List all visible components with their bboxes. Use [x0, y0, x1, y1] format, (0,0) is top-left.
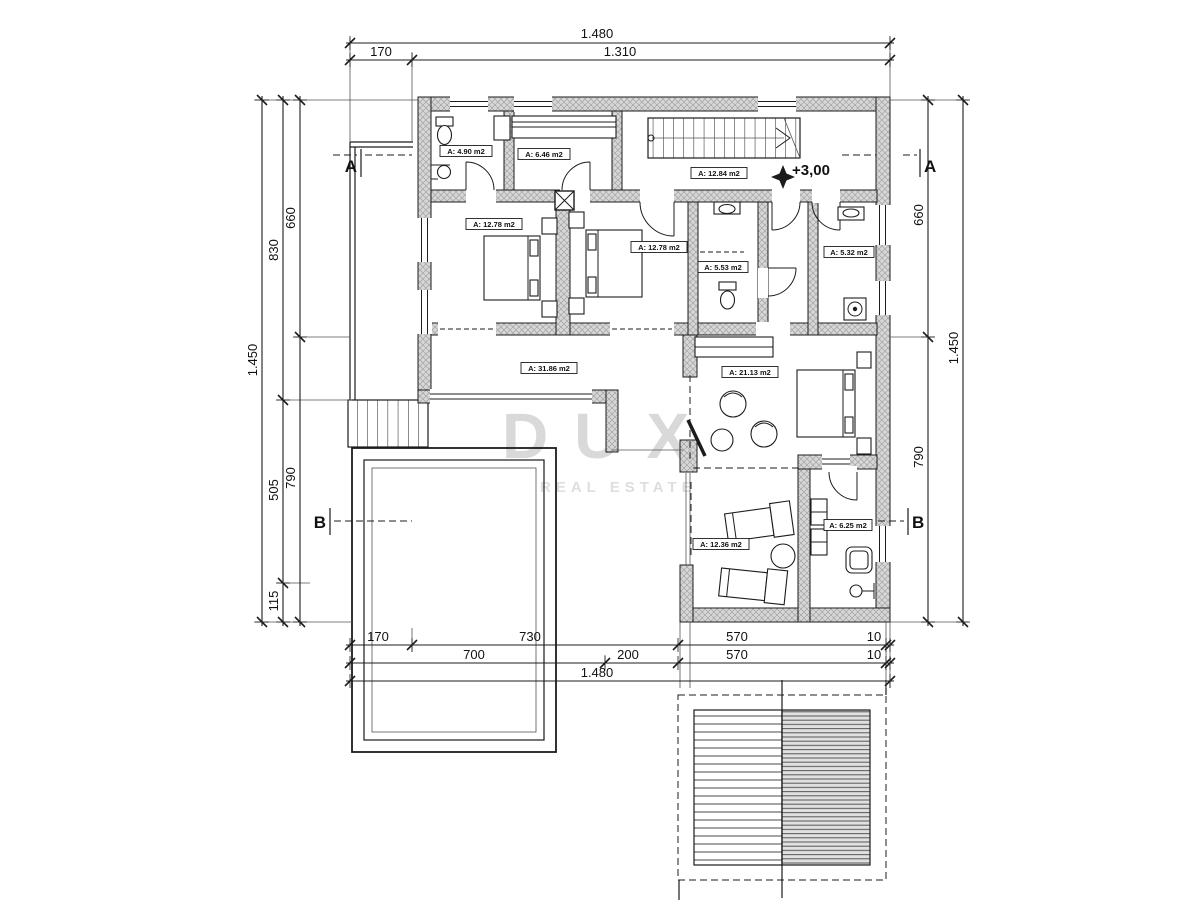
- room-label: A: 6.46 m2: [518, 149, 570, 160]
- room-label: A: 12.78 m2: [631, 242, 687, 253]
- room-label: A: 21.13 m2: [722, 367, 778, 378]
- dim-right-660: 660: [911, 204, 926, 226]
- floor-plan-drawing: DUX REAL ESTATE: [0, 0, 1200, 900]
- sink-icon-e: [838, 207, 864, 220]
- dim-bot-10b: 10: [867, 647, 881, 662]
- pergola-slats-left: [694, 710, 782, 865]
- section-b-right: B: [912, 513, 924, 532]
- sink-icon-mid: [714, 202, 740, 214]
- dim-top-total: 1.480: [581, 26, 614, 41]
- wardrobe-bedroom3: [695, 337, 773, 357]
- dim-left-505: 505: [266, 479, 281, 501]
- side-table-icon: [711, 429, 733, 451]
- pergola: [678, 680, 886, 900]
- pedestal-sink-icon: [850, 583, 874, 599]
- dim-left-115: 115: [266, 591, 281, 612]
- section-b-left: B: [314, 513, 326, 532]
- dim-bot-570a: 570: [726, 629, 748, 644]
- armchair-icon-2: [751, 421, 777, 447]
- dim-left-660: 660: [283, 207, 298, 229]
- wardrobe-closet: [494, 116, 616, 140]
- elevation-value: +3,00: [792, 162, 830, 179]
- bed-icon-bedroom3: [797, 352, 871, 454]
- svg-text:A: 4.90 m2: A: 4.90 m2: [447, 147, 485, 156]
- interior-stairs-icon: [648, 118, 800, 158]
- room-label: A: 5.32 m2: [824, 247, 874, 258]
- toilet-icon-mid: [719, 282, 736, 309]
- dimensions-bottom: 170 730 570 10 700 200 570 10 1.480: [345, 622, 895, 688]
- svg-text:A: 5.32 m2: A: 5.32 m2: [830, 248, 868, 257]
- svg-text:A: 6.46 m2: A: 6.46 m2: [525, 150, 563, 159]
- section-a-left: A: [345, 157, 357, 176]
- dim-left-1450: 1.450: [245, 344, 260, 377]
- washer-icon: [844, 298, 866, 320]
- bathtub-icon: [846, 547, 872, 573]
- bed-icon-bedroom2: [569, 212, 642, 314]
- toilet-icon-nw: [436, 117, 453, 145]
- dim-bot-170: 170: [367, 629, 389, 644]
- pool: [352, 448, 556, 752]
- svg-text:A: 12.78 m2: A: 12.78 m2: [638, 243, 680, 252]
- dim-left-830: 830: [266, 239, 281, 261]
- room-label: A: 12.78 m2: [466, 219, 522, 230]
- svg-text:A: 5.53 m2: A: 5.53 m2: [704, 263, 742, 272]
- dim-left-790: 790: [283, 467, 298, 489]
- dim-top-170: 170: [370, 44, 392, 59]
- armchair-icon-1: [720, 391, 746, 417]
- lounger-icon-2: [718, 564, 787, 605]
- dim-bot-200: 200: [617, 647, 639, 662]
- sink-icon-nw: [431, 165, 451, 179]
- bed-icon-bedroom1: [484, 218, 557, 317]
- dim-bot-570b: 570: [726, 647, 748, 662]
- room-label: A: 6.25 m2: [824, 520, 872, 531]
- west-terrace: [350, 142, 413, 400]
- elevation-marker: +3,00: [771, 162, 830, 189]
- floor-plan-canvas: DUX REAL ESTATE: [0, 0, 1200, 900]
- room-label: A: 12.84 m2: [691, 168, 747, 179]
- dim-bot-700: 700: [463, 647, 485, 662]
- dim-bot-10a: 10: [867, 629, 881, 644]
- pergola-slats-right: [782, 710, 870, 865]
- lounger-icon-1: [724, 501, 794, 544]
- watermark-tagline: REAL ESTATE: [540, 479, 697, 496]
- dim-right-1450: 1.450: [946, 332, 961, 365]
- svg-text:A: 12.78 m2: A: 12.78 m2: [473, 220, 515, 229]
- svg-text:A: 12.36 m2: A: 12.36 m2: [700, 540, 742, 549]
- dim-top-1310: 1.310: [604, 44, 637, 59]
- column: [555, 191, 574, 210]
- dimensions-left: 660 830 1.450 505 790 115: [245, 95, 418, 627]
- room-label: A: 4.90 m2: [440, 146, 492, 157]
- section-a-right: A: [924, 157, 936, 176]
- dim-bot-730: 730: [519, 629, 541, 644]
- exterior-stairs-icon: [348, 400, 428, 447]
- svg-text:A: 6.25 m2: A: 6.25 m2: [829, 521, 867, 530]
- room-label: A: 31.86 m2: [521, 363, 577, 374]
- svg-text:A: 31.86 m2: A: 31.86 m2: [528, 364, 570, 373]
- round-table-icon: [771, 544, 795, 568]
- room-label: A: 12.36 m2: [693, 539, 749, 550]
- svg-text:A: 12.84 m2: A: 12.84 m2: [698, 169, 740, 178]
- dim-right-790: 790: [911, 446, 926, 468]
- svg-text:A: 21.13 m2: A: 21.13 m2: [729, 368, 771, 377]
- dim-bot-total: 1.480: [581, 665, 614, 680]
- room-label: A: 5.53 m2: [698, 262, 748, 273]
